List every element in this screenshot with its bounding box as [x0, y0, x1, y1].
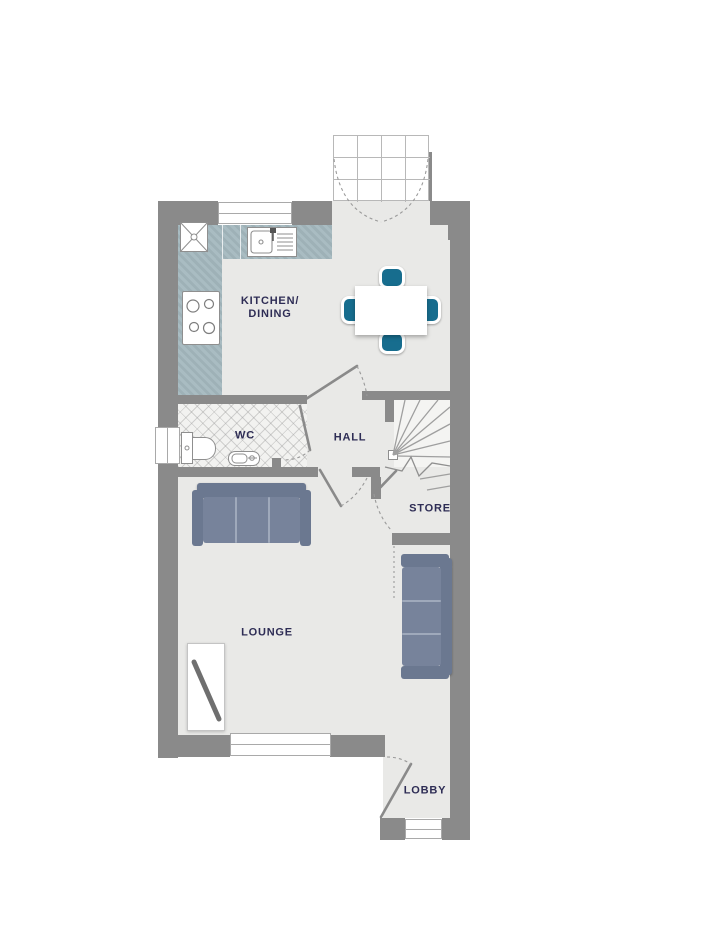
room-label-wc: WC [235, 430, 255, 443]
washing-machine-icon [180, 222, 208, 252]
hob-icon [182, 291, 220, 345]
sofa-arm [300, 490, 311, 546]
floor-french-threshold [332, 201, 430, 225]
sofa-back [440, 558, 452, 675]
sofa-arm [192, 490, 203, 546]
wall-kitchen-south [362, 391, 450, 400]
wall-lobby-bottom [380, 818, 405, 840]
kitchen-label-line2: DINING [248, 308, 291, 320]
sofa-arm [401, 666, 449, 679]
wall-lounge-bottom [158, 735, 230, 757]
lobby-window [405, 819, 442, 839]
window-divider [406, 829, 441, 830]
wall [430, 201, 470, 225]
lounge-window [230, 733, 331, 756]
sofa-seam [402, 600, 441, 602]
floor-lobby [383, 735, 450, 818]
wall-stair-stub [385, 391, 394, 422]
french-door-mullion [405, 136, 406, 202]
window-divider [219, 213, 291, 214]
french-door-mullion [381, 136, 382, 202]
toilet-bowl-icon [192, 437, 216, 460]
floor-plan: KITCHEN/ DINING WC HALL STORE LOUNGE LOB… [0, 0, 709, 946]
room-label-kitchen-dining: KITCHEN/ DINING [241, 295, 299, 321]
wall [448, 225, 470, 240]
french-door-rail [334, 157, 430, 158]
room-label-store: STORE [409, 503, 451, 516]
wall-wc-top [178, 395, 307, 404]
stairs-area [394, 400, 450, 467]
wall-hall-store [352, 467, 380, 477]
newel-post [388, 450, 398, 460]
sink-icon [247, 227, 297, 257]
wall-lobby-bottom [442, 818, 470, 840]
wall-left-lower [158, 464, 178, 758]
window-divider [231, 744, 330, 745]
wall-store-bottom [392, 533, 450, 545]
sofa-seat [203, 497, 300, 543]
worktop-seam [222, 225, 223, 259]
french-doors [333, 135, 429, 201]
wall [292, 201, 332, 225]
wall-left-upper [158, 201, 178, 427]
wc-window [155, 427, 180, 464]
wall-store-stub [371, 477, 381, 499]
kitchen-window [218, 202, 292, 224]
worktop-seam [240, 225, 241, 259]
window-divider [167, 428, 168, 463]
sofa [399, 554, 452, 679]
wall-wc-jamb [272, 458, 281, 468]
wall-lounge-bottom [330, 735, 385, 757]
sofa-arm [401, 554, 449, 567]
kitchen-label-line1: KITCHEN/ [241, 295, 299, 307]
wall-lounge-top [178, 467, 318, 477]
sofa-seat [402, 567, 441, 666]
french-door-mullion [357, 136, 358, 202]
french-door-rail [334, 179, 430, 180]
dining-table [355, 286, 427, 335]
room-label-hall: HALL [334, 432, 367, 445]
sofa-back [197, 483, 306, 498]
sofa-seam [235, 497, 237, 543]
room-label-lobby: LOBBY [404, 785, 447, 798]
tv-unit [187, 643, 225, 731]
basin-icon [228, 451, 260, 466]
wall-right [450, 240, 470, 840]
room-label-lounge: LOUNGE [241, 627, 293, 640]
sofa-seam [402, 633, 441, 635]
sofa [192, 483, 311, 546]
sofa-seam [268, 497, 270, 543]
